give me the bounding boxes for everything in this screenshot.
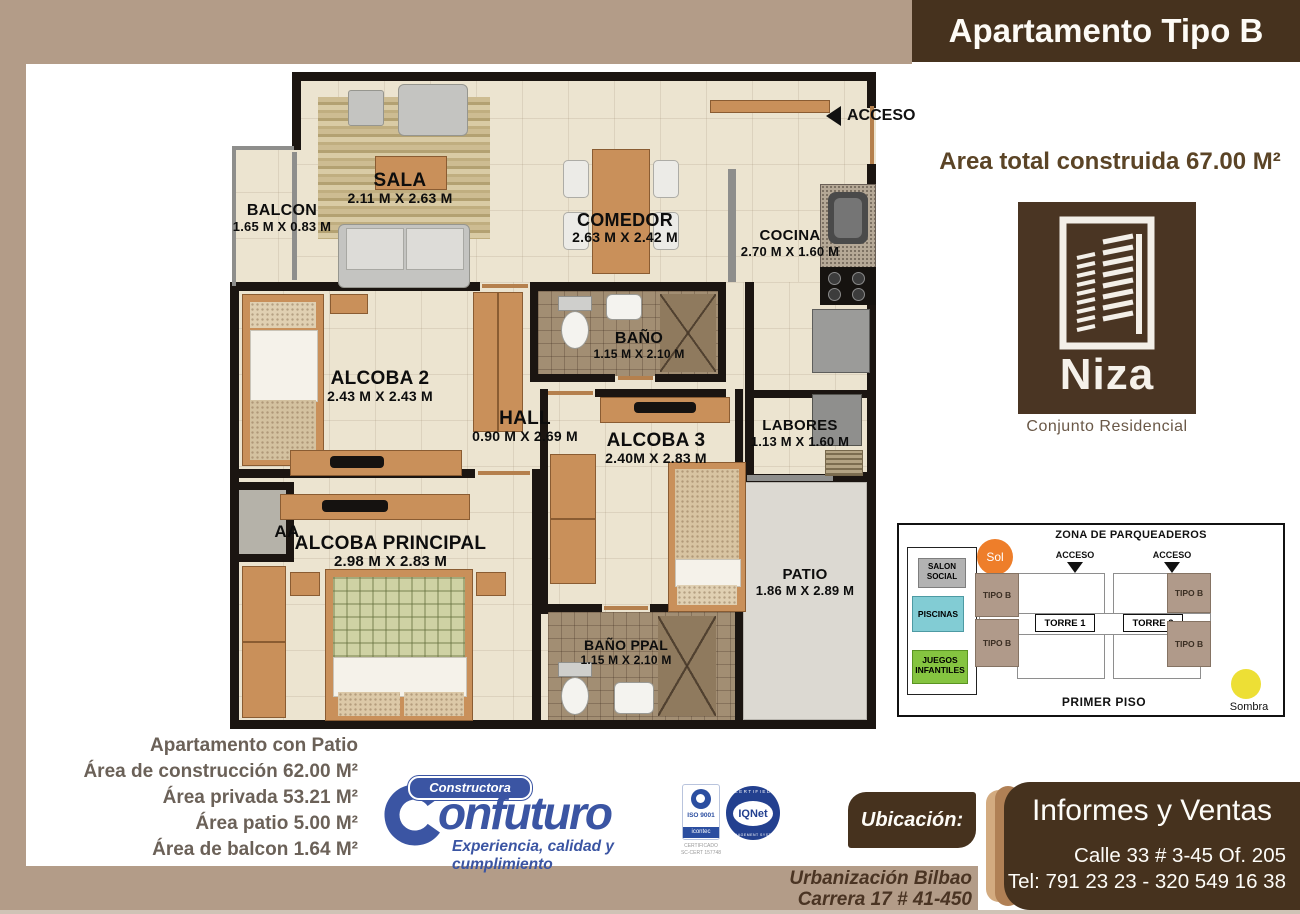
desk-item bbox=[330, 456, 384, 468]
site-plan: ZONA DE PARQUEADEROS Sol SALON SOCIAL PI… bbox=[897, 523, 1285, 717]
room-name: AA bbox=[248, 522, 326, 541]
confuturo-tagline: Experiencia, calidad y cumplimiento bbox=[452, 838, 682, 874]
address-line1: Urbanización Bilbao bbox=[782, 868, 972, 889]
iqnet-ring-top: CERTIFIED bbox=[726, 789, 780, 794]
address-block: Urbanización Bilbao Carrera 17 # 41-450 bbox=[782, 868, 972, 910]
room-label-cocina: COCINA 2.70 M X 1.60 M bbox=[716, 228, 864, 259]
room-label-hall: HALL 0.90 M X 2.69 M bbox=[450, 408, 600, 445]
burner bbox=[852, 288, 865, 301]
room-name: HALL bbox=[450, 408, 600, 429]
patio-floor bbox=[743, 482, 867, 720]
iso-9001-label: ISO 9001 bbox=[683, 812, 719, 819]
site-plan-title: ZONA DE PARQUEADEROS bbox=[989, 529, 1273, 541]
informes-title: Informes y Ventas bbox=[1004, 794, 1300, 828]
room-label-sala: SALA 2.11 M X 2.63 M bbox=[325, 170, 475, 207]
wall bbox=[745, 282, 754, 390]
iqnet-label: IQNet bbox=[733, 801, 773, 826]
acceso-arrow-2 bbox=[1164, 562, 1180, 573]
area-line: Área patio 5.00 M² bbox=[40, 811, 358, 837]
shade-marker bbox=[1231, 669, 1261, 699]
bath-sink bbox=[614, 682, 654, 714]
room-name: PATIO bbox=[730, 567, 880, 584]
tipo-b-unit: TIPO B bbox=[975, 619, 1019, 667]
acceso-label-2: ACCESO bbox=[1142, 550, 1202, 560]
room-dims: 1.15 M X 2.10 M bbox=[563, 348, 715, 361]
room-name: BAÑO PPAL bbox=[550, 638, 702, 654]
room-dims: 1.65 M X 0.83 M bbox=[206, 220, 358, 235]
tipo-b-unit: TIPO B bbox=[975, 573, 1019, 617]
dining-chair bbox=[563, 160, 589, 198]
room-dims: 1.15 M X 2.10 M bbox=[550, 654, 702, 667]
page-title: Apartamento Tipo B bbox=[912, 0, 1300, 62]
alcoba3-blanket bbox=[675, 469, 739, 559]
nightstand bbox=[476, 572, 506, 596]
header-bar: Apartamento Tipo B bbox=[912, 0, 1300, 62]
door bbox=[482, 284, 528, 288]
laundry-basket bbox=[825, 450, 863, 476]
icontec-swirl-center bbox=[696, 794, 705, 803]
room-name: ALCOBA 3 bbox=[580, 430, 732, 451]
area-line: Área de construcción 62.00 M² bbox=[40, 759, 358, 785]
area-line: Área de balcon 1.64 M² bbox=[40, 837, 358, 863]
sun-marker: Sol bbox=[977, 539, 1013, 575]
balcon-window bbox=[232, 146, 294, 150]
wall bbox=[230, 720, 876, 729]
cert-number: CERTIFICADO SC-CERT 157748 bbox=[677, 843, 725, 856]
niza-wordmark: Niza bbox=[1018, 350, 1196, 400]
area-line: Apartamento con Patio bbox=[40, 733, 358, 759]
wardrobe-divider bbox=[243, 641, 285, 643]
sala-ottoman bbox=[348, 90, 384, 126]
informes-box: Informes y Ventas Calle 33 # 3-45 Of. 20… bbox=[986, 782, 1300, 910]
niza-subtitle: Conjunto Residencial bbox=[1008, 418, 1206, 436]
icontec-badge: ISO 9001 icontec bbox=[682, 784, 720, 840]
toilet-tank bbox=[558, 296, 592, 311]
torre1-label: TORRE 1 bbox=[1035, 614, 1095, 632]
icontec-label: icontec bbox=[683, 827, 719, 838]
wall bbox=[867, 72, 876, 108]
room-dims: 0.90 M X 2.69 M bbox=[450, 429, 600, 445]
nightstand bbox=[290, 572, 320, 596]
room-dims: 1.86 M X 2.89 M bbox=[730, 584, 880, 599]
acceso-label-1: ACCESO bbox=[1045, 550, 1105, 560]
room-dims: 2.40M X 2.83 M bbox=[580, 451, 732, 467]
bath-sink bbox=[606, 294, 642, 320]
desk-item bbox=[634, 402, 696, 413]
ubicacion-box: Ubicación: bbox=[848, 792, 976, 848]
pillow bbox=[338, 692, 400, 716]
room-name: COMEDOR bbox=[550, 210, 700, 230]
shade-label: Sombra bbox=[1217, 701, 1281, 713]
pillow bbox=[404, 692, 464, 716]
room-name: ALCOBA 2 bbox=[304, 368, 456, 389]
alcoba3-wardrobe bbox=[550, 454, 596, 584]
alcoba2-pillow bbox=[250, 302, 316, 328]
confuturo-logo: Constructora onfuturo Experiencia, calid… bbox=[382, 776, 682, 864]
room-name: LABORES bbox=[724, 418, 876, 435]
facilities-box: SALON SOCIAL PISCINAS JUEGOS INFANTILES bbox=[907, 547, 977, 695]
informes-phone: Tel: 791 23 23 - 320 549 16 38 bbox=[1008, 870, 1286, 894]
wall bbox=[718, 282, 726, 382]
room-label-alcoba3: ALCOBA 3 2.40M X 2.83 M bbox=[580, 430, 732, 467]
acceso-marker: ACCESO bbox=[826, 106, 915, 126]
room-dims: 2.98 M X 2.83 M bbox=[263, 554, 518, 571]
informes-panel: Informes y Ventas Calle 33 # 3-45 Of. 20… bbox=[1004, 782, 1300, 910]
stove bbox=[820, 267, 876, 305]
alcoba3-pillow bbox=[677, 585, 737, 605]
juegos-infantiles-box: JUEGOS INFANTILES bbox=[912, 650, 968, 684]
door bbox=[478, 471, 530, 475]
niza-logo-box: Niza bbox=[1018, 202, 1196, 414]
wall bbox=[655, 374, 726, 382]
informes-address: Calle 33 # 3-45 Of. 205 bbox=[1074, 844, 1286, 868]
room-label-bano-ppal: BAÑO PPAL 1.15 M X 2.10 M bbox=[550, 638, 702, 667]
alcoba2-side-table bbox=[330, 294, 368, 314]
area-total-text: Area total construida 67.00 M² bbox=[930, 148, 1290, 176]
door bbox=[604, 606, 648, 610]
patio-window bbox=[747, 475, 833, 481]
burner bbox=[828, 272, 841, 285]
room-dims: 1.13 M X 1.60 M bbox=[724, 435, 876, 450]
room-dims: 2.11 M X 2.63 M bbox=[325, 191, 475, 207]
room-name: SALA bbox=[325, 170, 475, 191]
acceso-arrow-1 bbox=[1067, 562, 1083, 573]
cert-line1: CERTIFICADO bbox=[677, 843, 725, 850]
niza-building-icon bbox=[1057, 214, 1157, 354]
sala-sofa-cushion bbox=[406, 228, 464, 270]
salon-social-box: SALON SOCIAL bbox=[918, 558, 966, 588]
door bbox=[618, 376, 653, 380]
cert-line2: SC-CERT 157748 bbox=[677, 850, 725, 857]
flyer-page: { "header": { "title": "Apartamento Tipo… bbox=[0, 0, 1300, 914]
wall bbox=[300, 72, 876, 81]
wardrobe-divider bbox=[551, 518, 595, 520]
floor-plan: ACCESO BALCON 1.65 M X 0.83 M SALA 2.11 … bbox=[230, 64, 890, 744]
alcoba-ppal-sheet bbox=[333, 657, 467, 697]
icontec-swirl-icon bbox=[691, 789, 711, 809]
wall bbox=[230, 482, 294, 490]
room-name: COCINA bbox=[716, 228, 864, 245]
room-label-labores: LABORES 1.13 M X 1.60 M bbox=[724, 418, 876, 449]
alcoba-ppal-wardrobe bbox=[242, 566, 286, 718]
room-name: BAÑO bbox=[563, 330, 715, 348]
burner bbox=[828, 288, 841, 301]
burner bbox=[852, 272, 865, 285]
room-label-aa: AA bbox=[248, 522, 326, 541]
acceso-arrow-icon bbox=[826, 106, 841, 126]
wall bbox=[530, 374, 615, 382]
frame-bottom-edge bbox=[0, 910, 1300, 914]
iqnet-badge: CERTIFIED IQNet MANAGEMENT SYSTEM bbox=[726, 786, 780, 840]
frame-left bbox=[0, 64, 26, 866]
frame-top bbox=[0, 0, 912, 64]
room-label-patio: PATIO 1.86 M X 2.89 M bbox=[730, 567, 880, 598]
address-line2: Carrera 17 # 41-450 bbox=[782, 889, 972, 910]
area-line: Área privada 53.21 M² bbox=[40, 785, 358, 811]
room-label-comedor: COMEDOR 2.63 M X 2.42 M bbox=[550, 210, 700, 246]
iqnet-ring-bottom: MANAGEMENT SYSTEM bbox=[726, 833, 780, 837]
room-dims: 2.63 M X 2.42 M bbox=[550, 230, 700, 246]
wall bbox=[595, 389, 726, 397]
kitchen-shelf bbox=[710, 100, 830, 113]
kitchen-half-wall bbox=[728, 169, 736, 282]
room-dims: 2.43 M X 2.43 M bbox=[304, 389, 456, 405]
wall bbox=[292, 72, 301, 150]
tipo-b-unit: TIPO B bbox=[1167, 573, 1211, 613]
primer-piso-label: PRIMER PISO bbox=[1009, 695, 1199, 709]
fridge bbox=[812, 309, 870, 373]
acceso-label: ACCESO bbox=[847, 107, 915, 125]
wall bbox=[540, 604, 602, 612]
alcoba-ppal-plaid-blanket bbox=[333, 577, 465, 657]
areas-summary: Apartamento con Patio Área de construcci… bbox=[40, 733, 358, 863]
toilet-bowl bbox=[561, 677, 589, 715]
room-dims: 2.70 M X 1.60 M bbox=[716, 245, 864, 260]
wall bbox=[530, 282, 538, 382]
wall bbox=[530, 282, 726, 291]
room-label-alcoba2: ALCOBA 2 2.43 M X 2.43 M bbox=[304, 368, 456, 405]
ubicacion-label: Ubicación: bbox=[848, 792, 976, 848]
wall bbox=[230, 282, 239, 720]
piscinas-box: PISCINAS bbox=[912, 596, 964, 632]
desk-item bbox=[322, 500, 388, 512]
room-label-bano: BAÑO 1.15 M X 2.10 M bbox=[563, 330, 715, 361]
door bbox=[548, 391, 593, 395]
confuturo-wordmark: onfuturo bbox=[438, 786, 611, 840]
dining-chair bbox=[653, 160, 679, 198]
sala-armchair bbox=[398, 84, 468, 136]
certifications: ISO 9001 icontec CERTIFICADO SC-CERT 157… bbox=[682, 782, 786, 858]
tipo-b-unit: TIPO B bbox=[1167, 621, 1211, 667]
